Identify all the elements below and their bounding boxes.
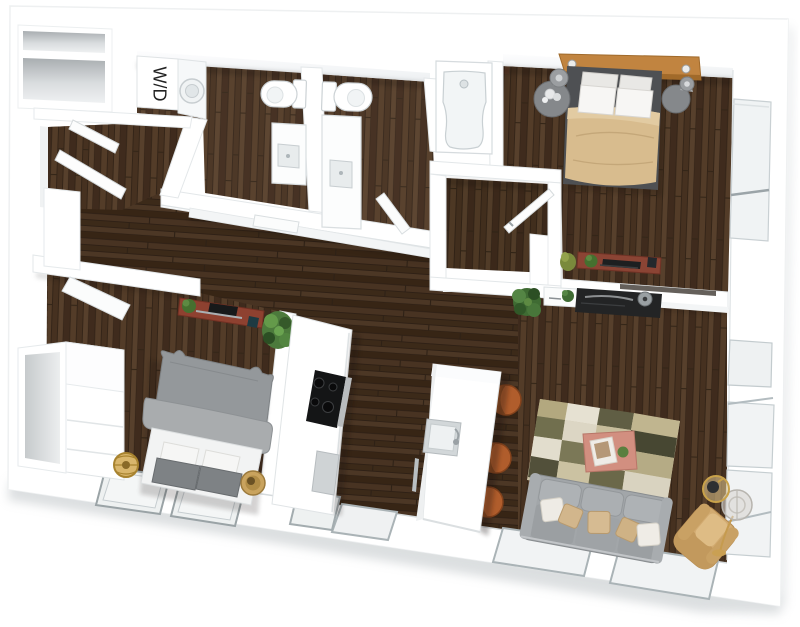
svg-text:W/D: W/D [149, 67, 169, 102]
